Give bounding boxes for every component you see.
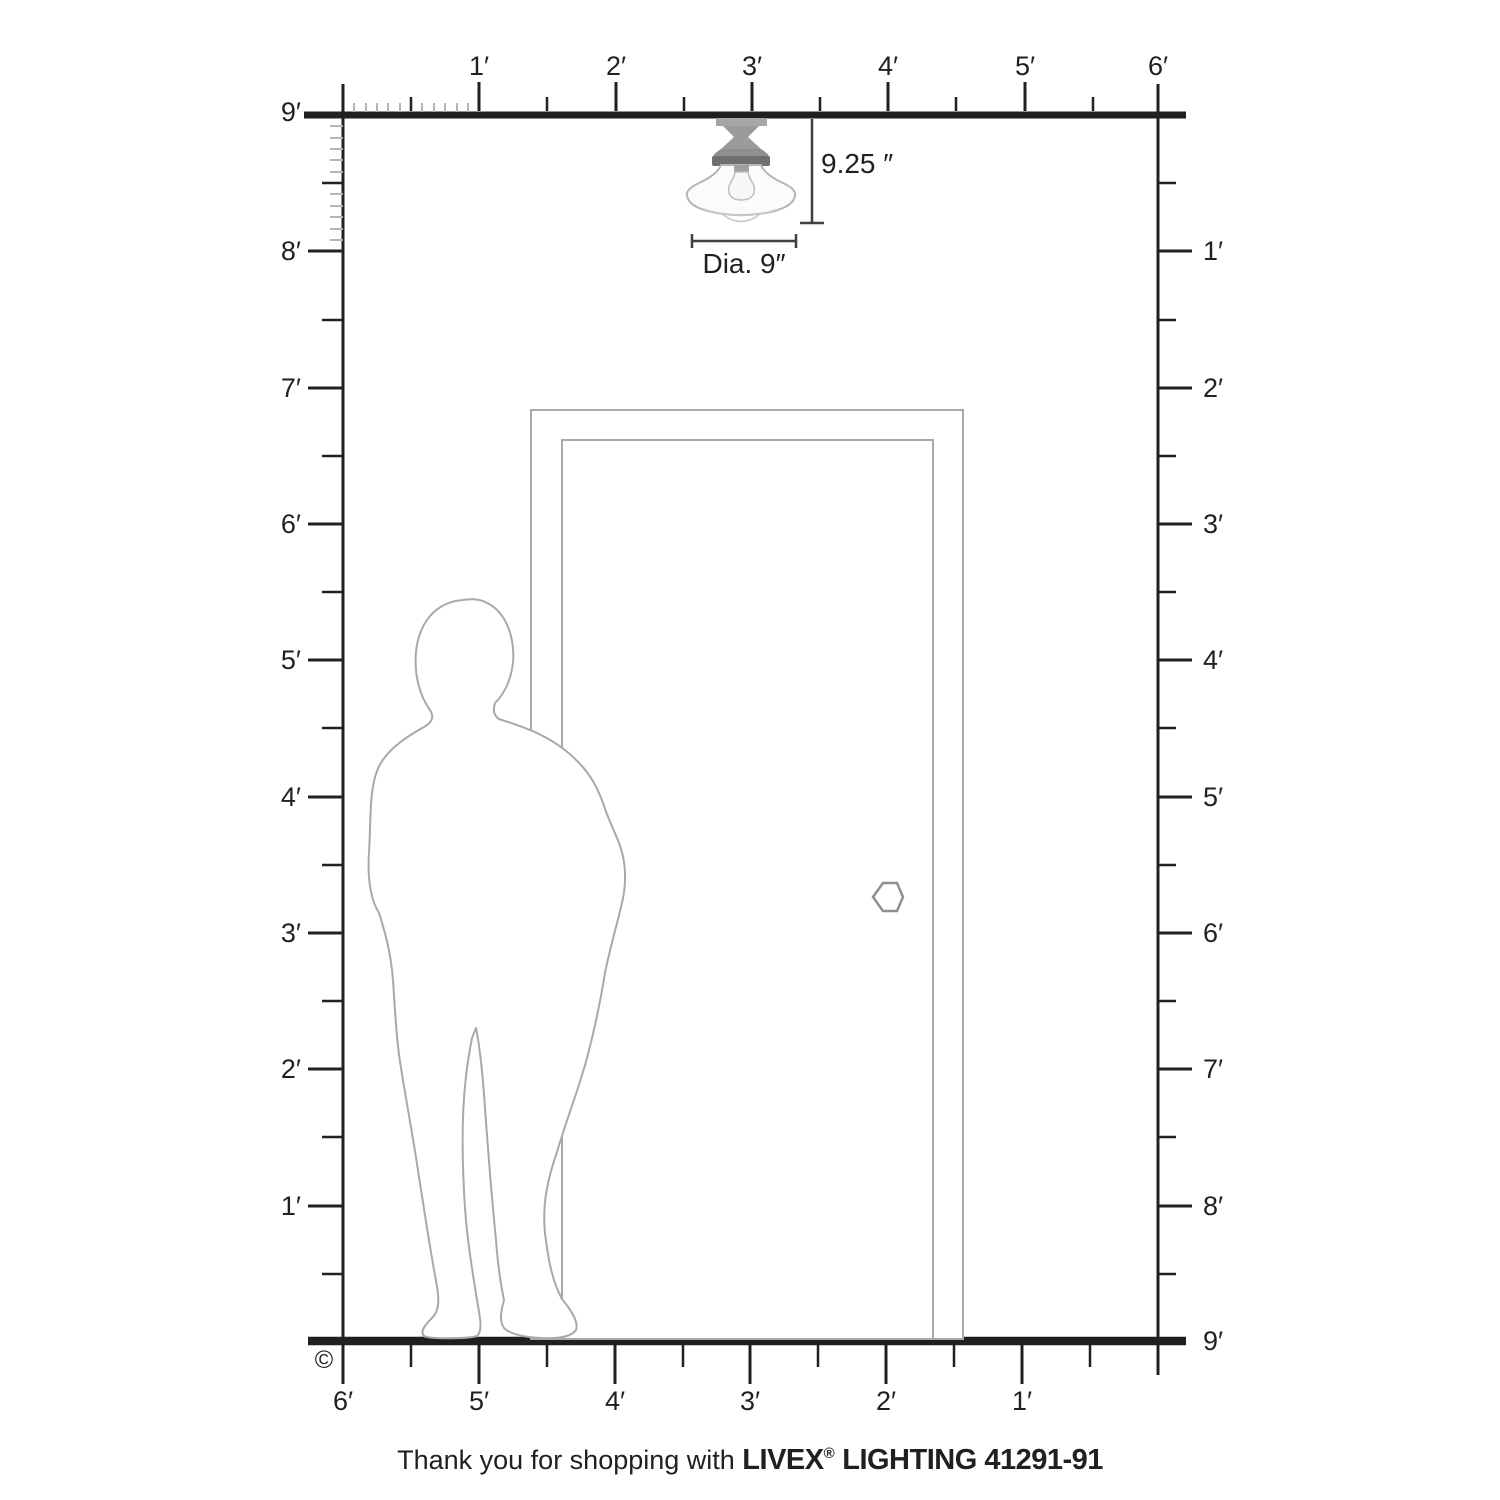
- caption: Thank you for shopping with LIVEX® LIGHT…: [0, 1444, 1500, 1477]
- registered-mark: ®: [824, 1445, 835, 1462]
- top-ruler-foot-ticks: [479, 82, 1025, 111]
- diameter-dimension: Dia. 9″: [692, 234, 796, 279]
- right-ruler-half-ticks: [1158, 183, 1176, 1274]
- top-ruler-label-5ft: 5′: [1015, 51, 1035, 81]
- top-ruler-label-3ft: 3′: [742, 51, 762, 81]
- right-ruler-label-3ft: 3′: [1203, 509, 1223, 539]
- right-ruler-label-6ft: 6′: [1203, 918, 1223, 948]
- height-dimension-label: 9.25 ″: [821, 148, 893, 179]
- left-ruler-label-5ft: 5′: [281, 645, 301, 675]
- bottom-ruler-label-4ft: 4′: [605, 1386, 625, 1416]
- diameter-dimension-line: [692, 234, 796, 248]
- caption-suffix: LIGHTING 41291-91: [835, 1444, 1103, 1476]
- left-ruler-label-7ft: 7′: [281, 373, 301, 403]
- copyright-symbol: ©: [315, 1346, 334, 1374]
- top-ruler-label-6ft: 6′: [1148, 51, 1168, 81]
- right-ruler: 1′ 2′ 3′ 4′ 5′ 6′ 7′ 8′ 9′: [1158, 183, 1223, 1356]
- bottom-ruler-label-6ft: 6′: [333, 1386, 353, 1416]
- right-ruler-label-5ft: 5′: [1203, 782, 1223, 812]
- left-ruler-label-6ft: 6′: [281, 509, 301, 539]
- left-ruler-label-4ft: 4′: [281, 782, 301, 812]
- bottom-ruler-label-3ft: 3′: [740, 1386, 760, 1416]
- left-ruler-label-8ft: 8′: [281, 236, 301, 266]
- brand-name: LIVEX: [742, 1444, 823, 1476]
- left-ruler-label-2ft: 2′: [281, 1054, 301, 1084]
- right-ruler-label-8ft: 8′: [1203, 1191, 1223, 1221]
- left-ruler: 9′ 8′ 7′ 6′ 5′ 4′ 3′ 2′ 1′: [281, 97, 343, 1274]
- caption-prefix: Thank you for shopping with: [397, 1445, 742, 1475]
- right-ruler-label-2ft: 2′: [1203, 373, 1223, 403]
- bulb-socket: [734, 165, 749, 172]
- left-ruler-half-ticks: [322, 183, 343, 1274]
- bottom-ruler-label-1ft: 1′: [1012, 1386, 1032, 1416]
- top-ruler-label-4ft: 4′: [878, 51, 898, 81]
- height-dimension: 9.25 ″: [800, 119, 893, 223]
- right-ruler-label-1ft: 1′: [1203, 236, 1223, 266]
- left-ruler-label-3ft: 3′: [281, 918, 301, 948]
- ceiling-light-fixture: [687, 118, 795, 222]
- bottom-ruler: 6′ 5′ 4′ 3′ 2′ 1′: [333, 1345, 1090, 1416]
- fixture-stem: [721, 126, 761, 149]
- top-ruler-label-2ft: 2′: [606, 51, 626, 81]
- left-ruler-label-9ft: 9′: [281, 97, 301, 127]
- top-ruler: 1′ 2′ 3′ 4′ 5′ 6′: [354, 51, 1168, 112]
- top-ruler-label-1ft: 1′: [469, 51, 489, 81]
- left-ruler-label-1ft: 1′: [281, 1191, 301, 1221]
- right-ruler-label-7ft: 7′: [1203, 1054, 1223, 1084]
- bottom-ruler-label-5ft: 5′: [469, 1386, 489, 1416]
- fixture-canopy-plate: [716, 118, 767, 126]
- right-ruler-label-4ft: 4′: [1203, 645, 1223, 675]
- right-ruler-label-9ft: 9′: [1203, 1326, 1223, 1356]
- diagram-canvas: 1′ 2′ 3′ 4′ 5′ 6′ 9′ 8′ 7′ 6′ 5′ 4′ 3′ 2…: [0, 0, 1500, 1500]
- fixture-fitter-bell: [713, 149, 769, 157]
- bottom-ruler-label-2ft: 2′: [876, 1386, 896, 1416]
- dimension-diagram: 1′ 2′ 3′ 4′ 5′ 6′ 9′ 8′ 7′ 6′ 5′ 4′ 3′ 2…: [0, 0, 1500, 1500]
- diameter-dimension-label: Dia. 9″: [702, 248, 785, 279]
